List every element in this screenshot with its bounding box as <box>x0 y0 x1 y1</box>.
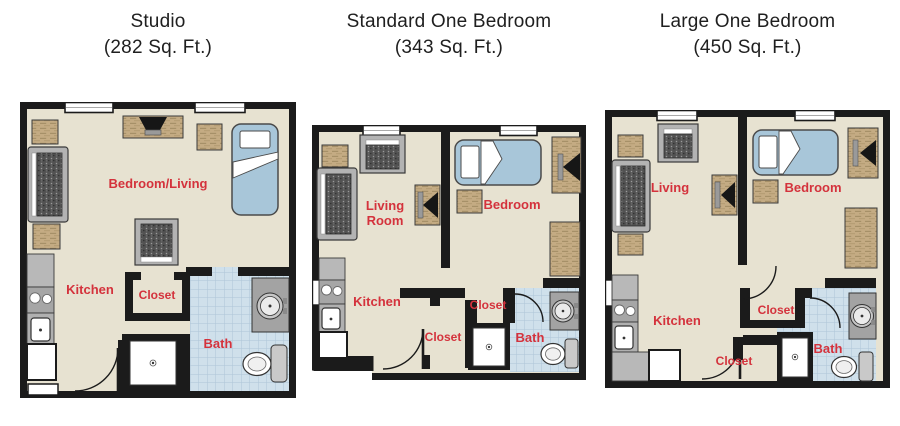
end-table-top <box>618 135 643 157</box>
shower <box>777 332 813 383</box>
bath-vanity <box>550 292 579 330</box>
fridge <box>649 350 680 381</box>
toilet-tank <box>271 345 287 382</box>
room-label-closet-upper: Closet <box>758 303 795 317</box>
toilet-tank <box>565 339 578 368</box>
room-label-bedroom: Bedroom <box>483 197 540 212</box>
large-area: (450 Sq. Ft.) <box>605 35 890 61</box>
floorplan-sheet: Studio (282 Sq. Ft.) Standard One Bedroo… <box>0 0 900 426</box>
fridge <box>27 344 56 380</box>
pillow <box>461 146 479 178</box>
large-one-bedroom-floorplan: Living Bedroom Kitchen Closet Closet Bat… <box>605 110 890 388</box>
standard-caption: Standard One Bedroom (343 Sq. Ft.) <box>312 9 586 61</box>
room-label-bedroom: Bedroom <box>784 180 841 195</box>
shower <box>122 334 190 391</box>
pillow <box>759 136 777 168</box>
bed <box>455 140 541 185</box>
room-label-living: Living <box>651 180 689 195</box>
room-label-closet-lower: Closet <box>716 354 753 368</box>
bed <box>232 124 278 215</box>
armchair <box>658 124 698 162</box>
wall-notch <box>312 371 372 381</box>
nightstand <box>753 180 778 203</box>
pillow <box>240 131 270 148</box>
bedroom-divider-wall <box>441 132 450 268</box>
sofa <box>28 147 68 222</box>
tv-console <box>712 175 737 215</box>
room-label-closet: Closet <box>139 288 176 302</box>
kitchen-counter <box>319 258 347 358</box>
armchair <box>135 219 178 265</box>
toilet-tank <box>859 352 873 381</box>
room-label-kitchen: Kitchen <box>66 282 114 297</box>
bath-vanity <box>252 278 289 332</box>
armchair <box>360 135 405 173</box>
room-label-bath: Bath <box>516 330 545 345</box>
standard-title: Standard One Bedroom <box>312 9 586 35</box>
room-label-kitchen: Kitchen <box>353 294 401 309</box>
room-label-closet-upper: Closet <box>470 298 507 312</box>
sofa <box>317 168 357 240</box>
bedroom-tv-console <box>848 128 878 178</box>
end-table <box>322 145 348 167</box>
room-label-living-1: Living <box>366 198 404 213</box>
studio-area: (282 Sq. Ft.) <box>20 35 296 61</box>
large-caption: Large One Bedroom (450 Sq. Ft.) <box>605 9 890 61</box>
large-title: Large One Bedroom <box>605 9 890 35</box>
kitchen-counter <box>27 254 56 380</box>
dresser <box>845 208 877 268</box>
room-label-bath: Bath <box>814 341 843 356</box>
end-table-bottom <box>618 234 643 255</box>
bedroom-tv-console <box>552 137 581 193</box>
standard-area: (343 Sq. Ft.) <box>312 35 586 61</box>
tv-console <box>123 116 183 138</box>
side-table <box>197 124 222 150</box>
room-label-kitchen: Kitchen <box>653 313 701 328</box>
sofa <box>612 160 650 232</box>
end-table-bottom <box>33 224 60 249</box>
bath-vanity <box>849 293 876 339</box>
room-label-closet-lower: Closet <box>425 330 462 344</box>
bedroom-divider-wall <box>738 117 747 265</box>
room-label-bedroom-living: Bedroom/Living <box>109 176 208 191</box>
end-table-top <box>32 120 58 144</box>
tv-console <box>415 185 440 225</box>
shower <box>468 323 510 370</box>
bed <box>753 130 838 175</box>
dresser <box>550 222 580 276</box>
room-label-living-2: Room <box>367 213 404 228</box>
studio-floorplan: Bedroom/Living Kitchen Closet Bath <box>20 102 296 398</box>
standard-one-bedroom-floorplan: Living Room Bedroom Kitchen Closet Close… <box>312 125 586 380</box>
fridge <box>319 332 347 358</box>
studio-title: Studio <box>20 9 296 35</box>
studio-caption: Studio (282 Sq. Ft.) <box>20 9 296 61</box>
room-label-bath: Bath <box>204 336 233 351</box>
nightstand <box>457 190 482 213</box>
